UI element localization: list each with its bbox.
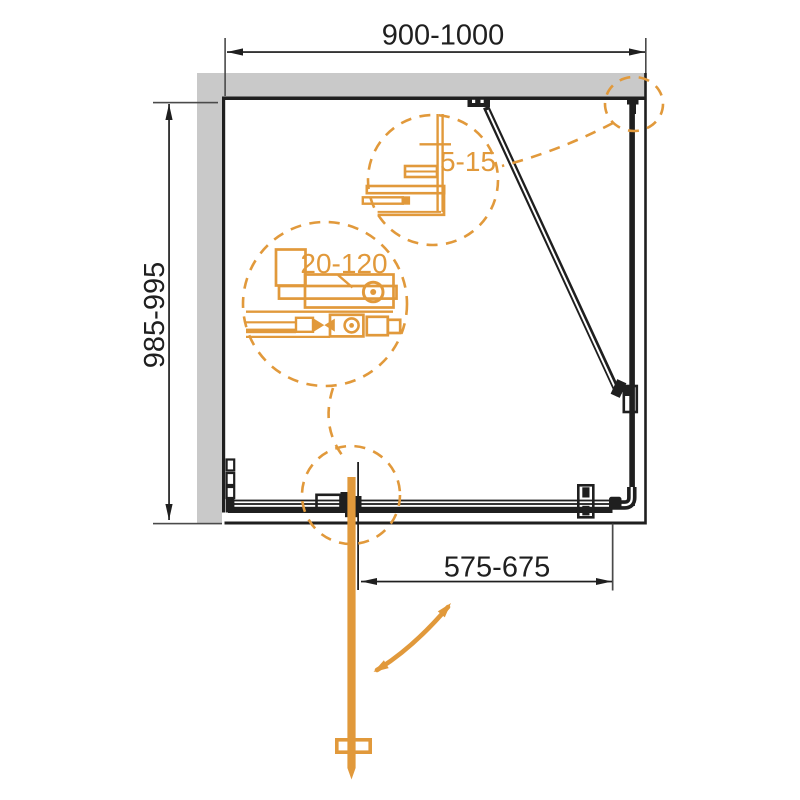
bracket-segment [227, 473, 235, 485]
bracket-segment [227, 487, 235, 498]
dimension-arrow-down [165, 504, 172, 520]
callout-leader-bottom [329, 388, 345, 459]
extension-tick-top [153, 102, 218, 104]
frame-left-profile [222, 97, 225, 513]
callout-circle-mechanism [243, 222, 407, 386]
fixed-panel-glass [629, 103, 635, 506]
depth-dimension-label: 985-995 [139, 262, 171, 368]
fixed-panel-top-mount [627, 99, 639, 105]
mechanism-cone-left [314, 319, 325, 332]
bracket-segment [227, 460, 235, 471]
door-width-label: 575-675 [444, 552, 550, 584]
pivot-extension-line [357, 462, 359, 590]
extension-tick-bottom [153, 523, 222, 525]
clamp-axle [349, 323, 354, 328]
door-swing-arrow [374, 603, 452, 672]
profile-end-cap [402, 196, 411, 204]
dimension-door-width: 575-675 [361, 524, 614, 591]
left-corner-bracket [226, 460, 235, 513]
mechanism-rail-band [279, 286, 397, 299]
dimension-arrow-right [596, 578, 612, 585]
bracket-foot [226, 499, 235, 513]
mechanism-body [305, 275, 394, 308]
mechanism-end-block [367, 317, 388, 335]
roller-axle [370, 289, 376, 295]
dimension-arrow-up [165, 104, 172, 120]
bracket-screw-hole [472, 100, 475, 103]
front-glass-closed-position [228, 507, 613, 513]
support-bar-wall-bracket [468, 97, 491, 108]
technical-drawing-page: 900-1000 985-995 575-675 [0, 0, 800, 800]
detail-wall-profile: 5-15 [363, 114, 496, 215]
mechanism-end-cap [388, 320, 400, 333]
open-door-panel [347, 477, 355, 768]
callout-circle-wall-profile [368, 115, 498, 245]
frame-right-outer-edge [644, 73, 647, 525]
dimension-arrow-left [361, 578, 377, 585]
mechanism-base-bar [246, 329, 296, 334]
support-bar-core [488, 110, 618, 393]
wall-profile-gap-label: 5-15 [440, 146, 496, 177]
fixed-panel-top-clamp [630, 104, 637, 114]
mechanism-range-label: 20-120 [300, 248, 387, 279]
swing-arc [377, 607, 448, 670]
support-bar-assembly [468, 97, 637, 413]
clamp-tab [582, 506, 589, 516]
track-rail-line [232, 503, 613, 505]
bracket-screw-hole [481, 100, 484, 103]
wall-left [197, 73, 222, 523]
dimension-arrow-right [629, 48, 645, 55]
frame-bottom-outer-edge [225, 522, 647, 525]
fixed-glass-panel [612, 99, 639, 507]
dimension-arrow-left [227, 48, 243, 55]
bottom-track-assembly [226, 460, 622, 591]
support-bar-panel-pin [625, 387, 632, 396]
callout-leader-top [502, 123, 613, 166]
mechanism-slider-block [296, 318, 313, 332]
extension-line-right [612, 524, 614, 591]
profile-wide-bar [367, 186, 444, 193]
clamp-tab [582, 487, 589, 497]
extension-line-right [645, 38, 647, 73]
frame-top-profile [222, 97, 647, 101]
detail-roller-mechanism: 20-120 [246, 248, 400, 337]
width-dimension-label: 900-1000 [382, 20, 505, 52]
profile-lower-bar [363, 197, 403, 203]
shower-enclosure-plan-drawing: 900-1000 985-995 575-675 [0, 0, 800, 800]
extension-line-left [224, 38, 226, 96]
right-roller-block [609, 497, 622, 509]
track-rail-line [232, 500, 613, 502]
wall-top [197, 73, 645, 97]
pivot-carriage-outline [317, 495, 341, 508]
open-door-panel-tip [347, 768, 355, 780]
